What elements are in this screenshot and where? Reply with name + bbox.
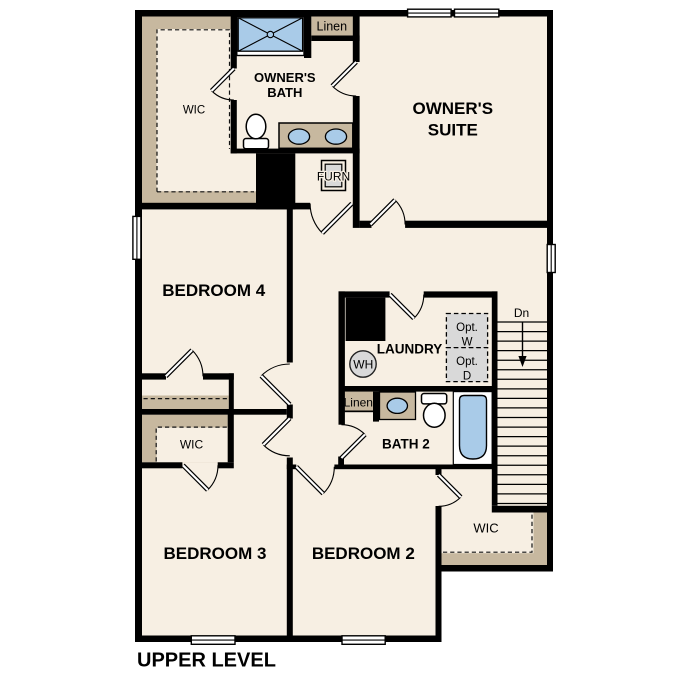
svg-text:WIC: WIC: [473, 521, 498, 536]
svg-text:Dn: Dn: [514, 306, 529, 320]
svg-text:BEDROOM 3: BEDROOM 3: [164, 544, 267, 563]
svg-text:LAUNDRY: LAUNDRY: [377, 342, 443, 357]
svg-text:SUITE: SUITE: [428, 121, 478, 140]
svg-text:Linen: Linen: [344, 396, 373, 410]
svg-text:BEDROOM 4: BEDROOM 4: [162, 281, 266, 300]
svg-text:FURN: FURN: [317, 170, 350, 184]
svg-text:Linen: Linen: [317, 20, 348, 34]
svg-text:WIC: WIC: [183, 105, 205, 117]
svg-text:Opt.: Opt.: [456, 356, 478, 368]
svg-text:BEDROOM 2: BEDROOM 2: [312, 544, 415, 563]
svg-text:W: W: [462, 337, 473, 349]
svg-text:BATH 2: BATH 2: [382, 437, 430, 452]
svg-text:WH: WH: [353, 358, 373, 372]
svg-text:WIC: WIC: [180, 438, 204, 452]
svg-text:Opt.: Opt.: [456, 322, 478, 334]
svg-text:D: D: [463, 371, 471, 383]
svg-text:UPPER LEVEL: UPPER LEVEL: [137, 650, 276, 672]
svg-text:BATH: BATH: [267, 85, 302, 100]
svg-text:OWNER'S: OWNER'S: [254, 70, 316, 85]
svg-text:OWNER'S: OWNER'S: [413, 99, 494, 118]
